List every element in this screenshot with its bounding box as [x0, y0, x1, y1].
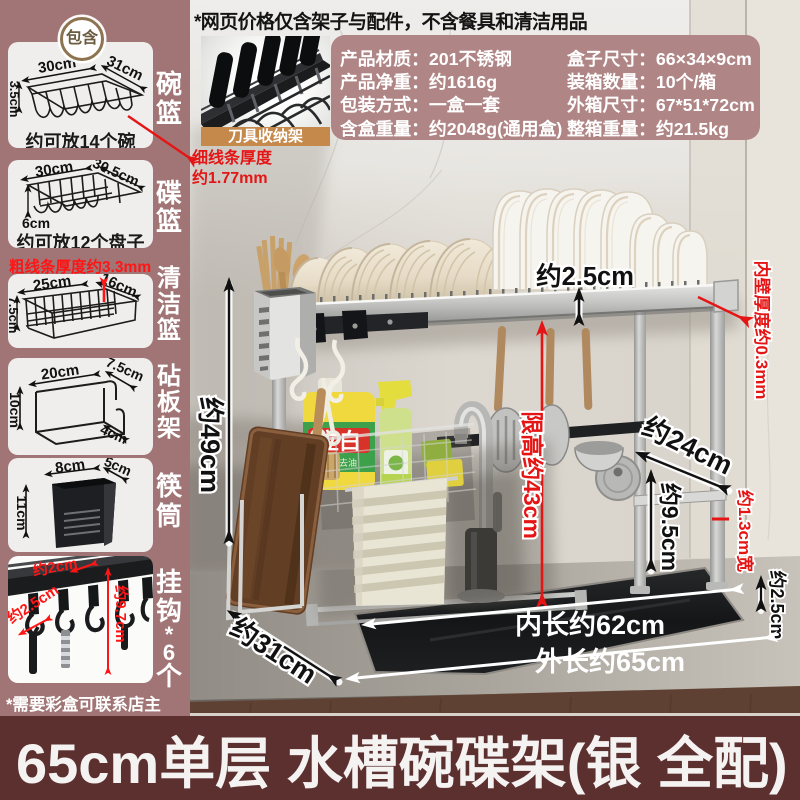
svg-text:约2.5cm: 约2.5cm [767, 570, 788, 639]
svg-text:约1.77mm: 约1.77mm [192, 168, 268, 187]
svg-text:细线条厚度: 细线条厚度 [192, 148, 273, 167]
svg-text:约49cm: 约49cm [195, 397, 225, 493]
svg-text:限高约43cm: 限高约43cm [519, 411, 545, 539]
svg-text:4cm: 4cm [98, 421, 130, 447]
svg-text:约9.7cm: 约9.7cm [112, 585, 130, 643]
svg-text:25cm: 25cm [32, 274, 72, 295]
svg-text:31cm: 31cm [104, 52, 146, 84]
svg-text:11cm: 11cm [14, 495, 30, 530]
svg-text:内壁厚度约0.3mm: 内壁厚度约0.3mm [752, 261, 772, 400]
svg-text:8cm: 8cm [54, 458, 86, 477]
svg-text:3.5cm: 3.5cm [8, 81, 22, 118]
svg-text:内长约62cm: 内长约62cm [515, 610, 665, 640]
svg-text:16cm: 16cm [98, 274, 140, 301]
svg-text:外长约65cm: 外长约65cm [535, 647, 685, 677]
svg-text:约2.5cm: 约2.5cm [536, 263, 634, 291]
svg-text:约9.5cm: 约9.5cm [657, 483, 683, 571]
svg-text:30.5cm: 30.5cm [90, 160, 141, 190]
svg-text:10cm: 10cm [8, 392, 23, 428]
svg-text:20cm: 20cm [40, 361, 80, 383]
svg-text:7.5cm: 7.5cm [8, 297, 21, 334]
svg-text:约1.3cm宽: 约1.3cm宽 [735, 490, 755, 572]
